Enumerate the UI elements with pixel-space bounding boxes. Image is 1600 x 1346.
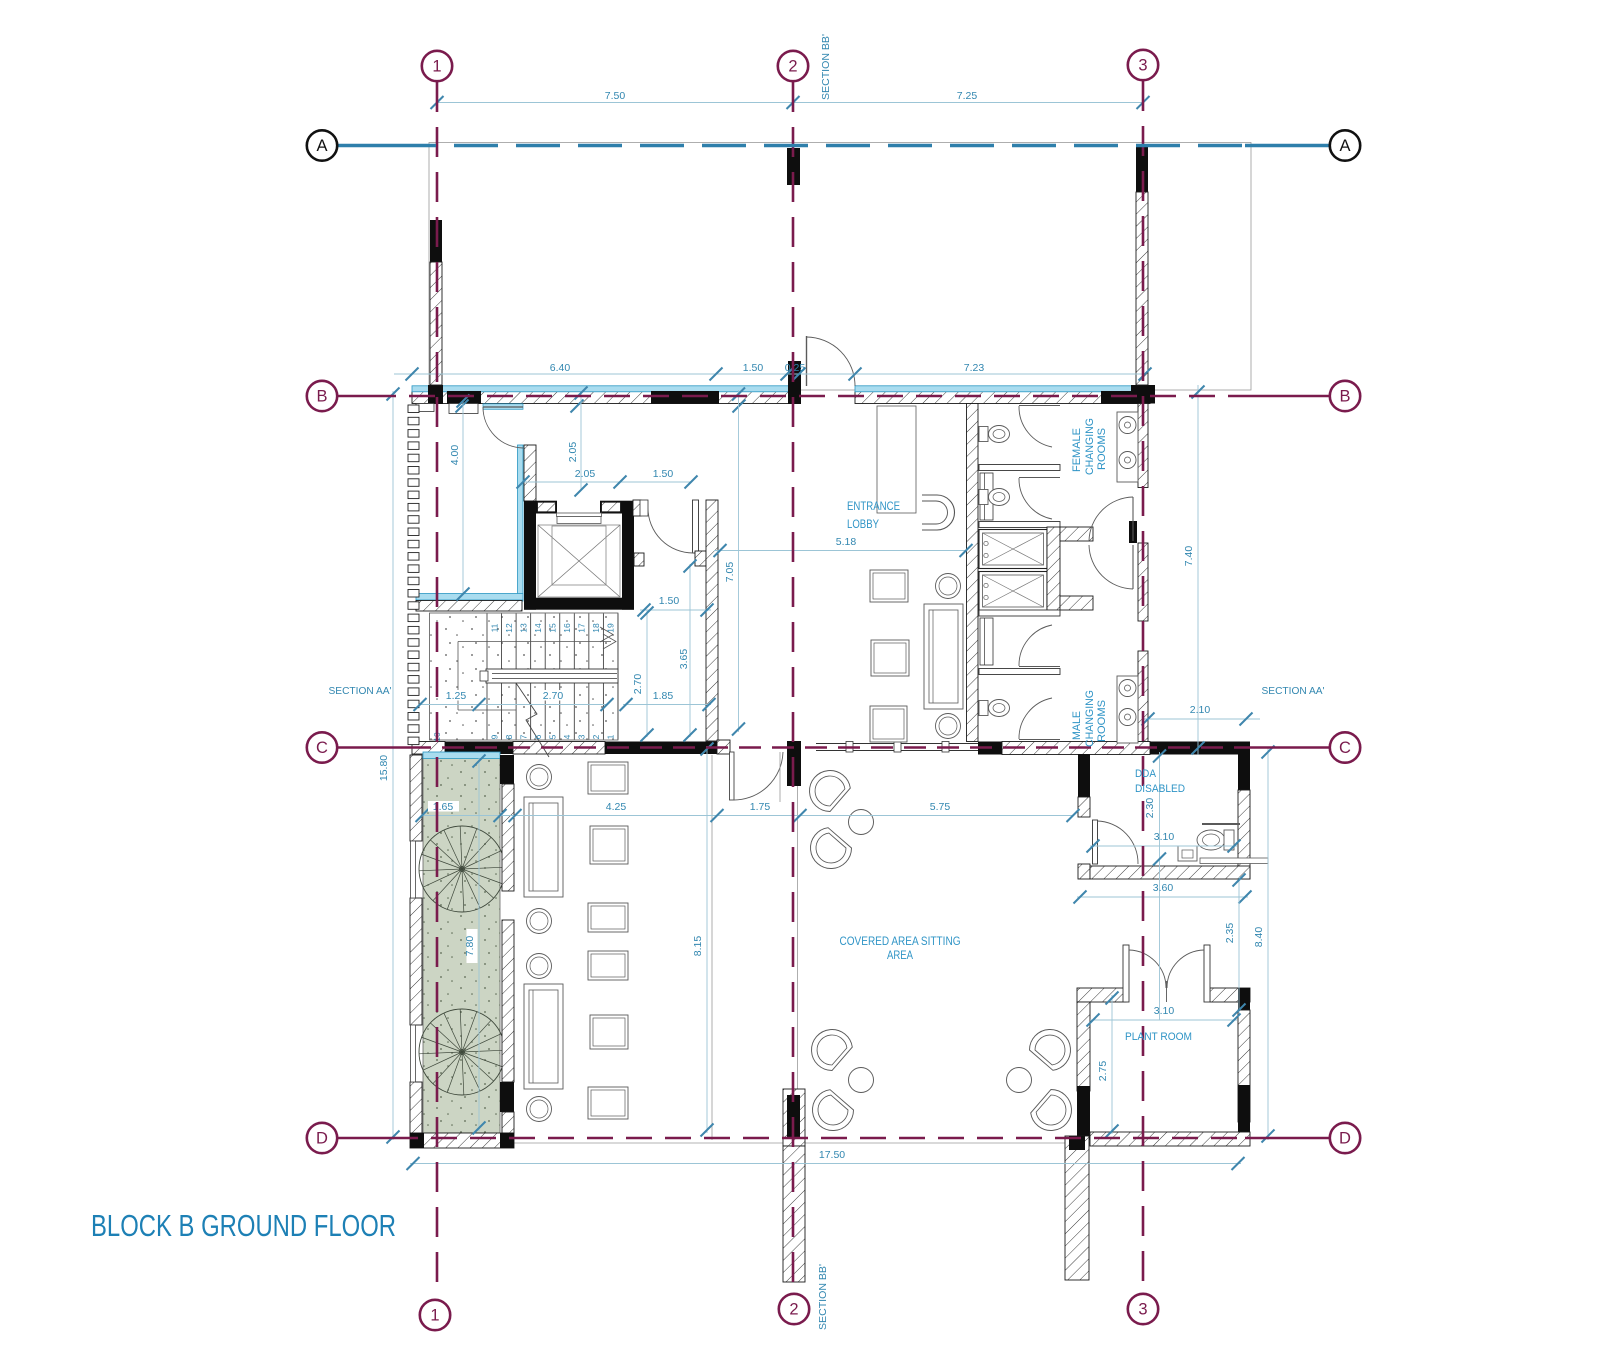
- svg-text:8.15: 8.15: [692, 936, 704, 957]
- svg-text:8: 8: [504, 734, 514, 739]
- svg-text:1.50: 1.50: [743, 362, 764, 374]
- svg-text:1.50: 1.50: [659, 595, 680, 607]
- svg-text:2.70: 2.70: [632, 674, 644, 695]
- svg-text:CHANGING: CHANGING: [1084, 690, 1096, 747]
- svg-text:7.25: 7.25: [957, 90, 978, 102]
- svg-text:SECTION AA': SECTION AA': [329, 685, 392, 697]
- svg-text:2.35: 2.35: [1224, 923, 1236, 944]
- svg-text:9: 9: [489, 734, 499, 739]
- svg-text:3.60: 3.60: [1153, 882, 1174, 894]
- svg-text:ENTRANCE: ENTRANCE: [847, 501, 900, 513]
- svg-text:15.80: 15.80: [378, 755, 390, 781]
- svg-text:ROOMS: ROOMS: [1096, 700, 1108, 742]
- svg-text:19: 19: [606, 623, 616, 633]
- svg-text:DDA: DDA: [1135, 768, 1157, 780]
- svg-text:7.80: 7.80: [464, 936, 476, 957]
- svg-text:8.40: 8.40: [1253, 927, 1265, 948]
- svg-text:ROOMS: ROOMS: [1096, 428, 1108, 470]
- svg-text:7: 7: [518, 734, 528, 739]
- svg-text:4: 4: [562, 734, 572, 739]
- svg-text:LOBBY: LOBBY: [847, 519, 879, 531]
- svg-text:3.65: 3.65: [678, 649, 690, 670]
- svg-text:SECTION BB': SECTION BB': [817, 1264, 829, 1330]
- svg-text:7.50: 7.50: [605, 90, 626, 102]
- svg-text:CHANGING: CHANGING: [1084, 418, 1096, 475]
- svg-text:5.18: 5.18: [836, 536, 857, 548]
- svg-text:2.30: 2.30: [1144, 798, 1156, 819]
- svg-text:3: 3: [1138, 57, 1147, 75]
- svg-text:1.85: 1.85: [653, 690, 674, 702]
- svg-text:D: D: [1339, 1130, 1351, 1148]
- svg-text:1: 1: [430, 1307, 439, 1325]
- svg-text:1.25: 1.25: [446, 690, 467, 702]
- svg-text:6.40: 6.40: [550, 362, 571, 374]
- svg-text:2.70: 2.70: [543, 690, 564, 702]
- svg-text:DISABLED: DISABLED: [1135, 783, 1185, 795]
- svg-text:SECTION BB': SECTION BB': [820, 34, 832, 100]
- svg-text:17.50: 17.50: [819, 1149, 845, 1161]
- svg-text:SECTION AA': SECTION AA': [1262, 685, 1325, 697]
- svg-text:MALE: MALE: [1071, 711, 1083, 740]
- svg-text:1.75: 1.75: [750, 801, 771, 813]
- svg-text:1.50: 1.50: [653, 468, 674, 480]
- svg-text:7.40: 7.40: [1183, 546, 1195, 567]
- svg-text:12: 12: [504, 623, 514, 633]
- svg-text:2: 2: [788, 58, 797, 76]
- svg-text:1: 1: [432, 58, 441, 76]
- svg-text:18: 18: [591, 623, 601, 633]
- svg-text:3: 3: [577, 734, 587, 739]
- svg-text:C: C: [316, 739, 328, 757]
- svg-text:AREA: AREA: [887, 950, 913, 962]
- svg-text:2.75: 2.75: [1097, 1061, 1109, 1082]
- svg-text:7.23: 7.23: [964, 362, 985, 374]
- svg-text:15: 15: [547, 623, 557, 633]
- svg-text:14: 14: [533, 623, 543, 633]
- svg-text:A: A: [1339, 137, 1350, 155]
- svg-text:D: D: [316, 1130, 328, 1148]
- svg-text:16: 16: [562, 623, 572, 633]
- svg-text:13: 13: [518, 623, 528, 633]
- svg-text:C: C: [1339, 739, 1351, 757]
- svg-text:2.05: 2.05: [575, 468, 596, 480]
- svg-text:11: 11: [489, 623, 499, 632]
- svg-text:2: 2: [789, 1301, 798, 1319]
- svg-text:5.75: 5.75: [930, 801, 951, 813]
- svg-text:4.25: 4.25: [606, 801, 627, 813]
- svg-text:A: A: [316, 137, 327, 155]
- svg-text:7.05: 7.05: [724, 562, 736, 583]
- svg-text:0.25: 0.25: [785, 362, 806, 374]
- svg-text:4.00: 4.00: [449, 445, 461, 466]
- svg-text:3.10: 3.10: [1154, 1005, 1175, 1017]
- svg-text:3: 3: [1138, 1301, 1147, 1319]
- svg-text:1: 1: [606, 734, 616, 739]
- svg-text:BLOCK B GROUND FLOOR: BLOCK B GROUND FLOOR: [91, 1209, 396, 1243]
- svg-text:2.05: 2.05: [567, 442, 579, 463]
- svg-text:2: 2: [591, 734, 601, 739]
- svg-text:6: 6: [533, 734, 543, 739]
- svg-text:FEMALE: FEMALE: [1071, 428, 1083, 472]
- svg-text:2.10: 2.10: [1190, 704, 1211, 716]
- svg-text:B: B: [316, 388, 327, 406]
- svg-text:5: 5: [547, 734, 557, 739]
- svg-text:17: 17: [577, 623, 587, 633]
- svg-text:COVERED AREA SITTING: COVERED AREA SITTING: [840, 936, 961, 948]
- svg-text:PLANT ROOM: PLANT ROOM: [1125, 1031, 1192, 1043]
- svg-text:B: B: [1339, 388, 1350, 406]
- svg-text:3.10: 3.10: [1154, 831, 1175, 843]
